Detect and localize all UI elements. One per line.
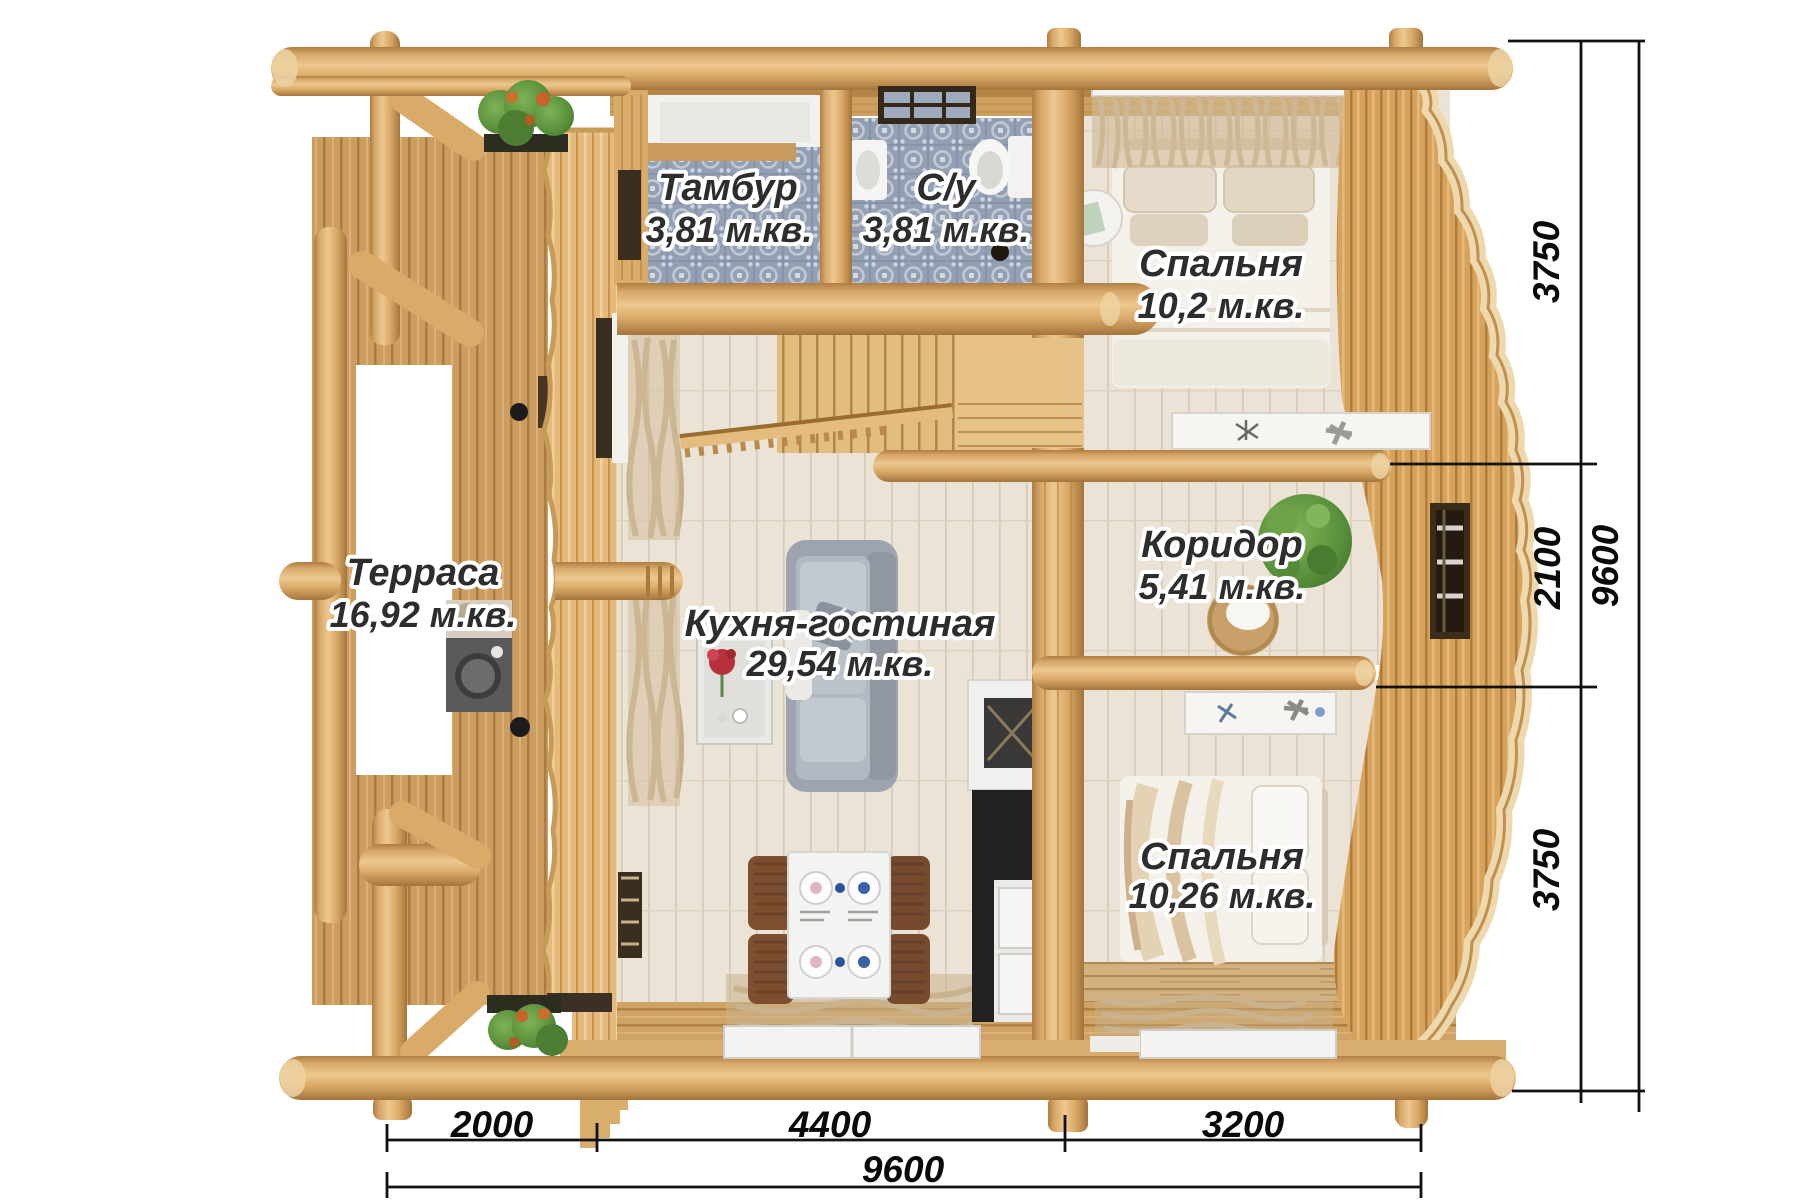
svg-text:5,41 м.кв.: 5,41 м.кв.: [1139, 566, 1306, 607]
svg-text:С/у: С/у: [916, 167, 977, 209]
svg-text:3,81 м.кв.: 3,81 м.кв.: [863, 209, 1030, 250]
svg-text:2100: 2100: [1527, 526, 1568, 610]
svg-text:Кухня-гостиная: Кухня-гостиная: [685, 603, 996, 645]
svg-text:29,54 м.кв.: 29,54 м.кв.: [746, 643, 934, 684]
svg-text:Терраса: Терраса: [347, 552, 500, 594]
svg-text:Тамбур: Тамбур: [658, 167, 797, 209]
svg-text:2000: 2000: [450, 1104, 534, 1145]
svg-text:9600: 9600: [1585, 524, 1626, 607]
svg-text:3,81 м.кв.: 3,81 м.кв.: [646, 209, 813, 250]
svg-text:4400: 4400: [788, 1104, 872, 1145]
svg-text:10,2 м.кв.: 10,2 м.кв.: [1138, 285, 1305, 326]
svg-text:Спальня: Спальня: [1140, 836, 1304, 878]
svg-text:10,26 м.кв.: 10,26 м.кв.: [1129, 875, 1316, 916]
svg-text:Спальня: Спальня: [1139, 243, 1303, 285]
svg-text:3200: 3200: [1202, 1104, 1285, 1145]
svg-text:16,92 м.кв.: 16,92 м.кв.: [330, 594, 517, 635]
svg-text:Коридор: Коридор: [1141, 524, 1302, 566]
svg-text:3750: 3750: [1526, 828, 1567, 911]
svg-text:3750: 3750: [1526, 220, 1567, 303]
svg-text:9600: 9600: [862, 1149, 945, 1190]
